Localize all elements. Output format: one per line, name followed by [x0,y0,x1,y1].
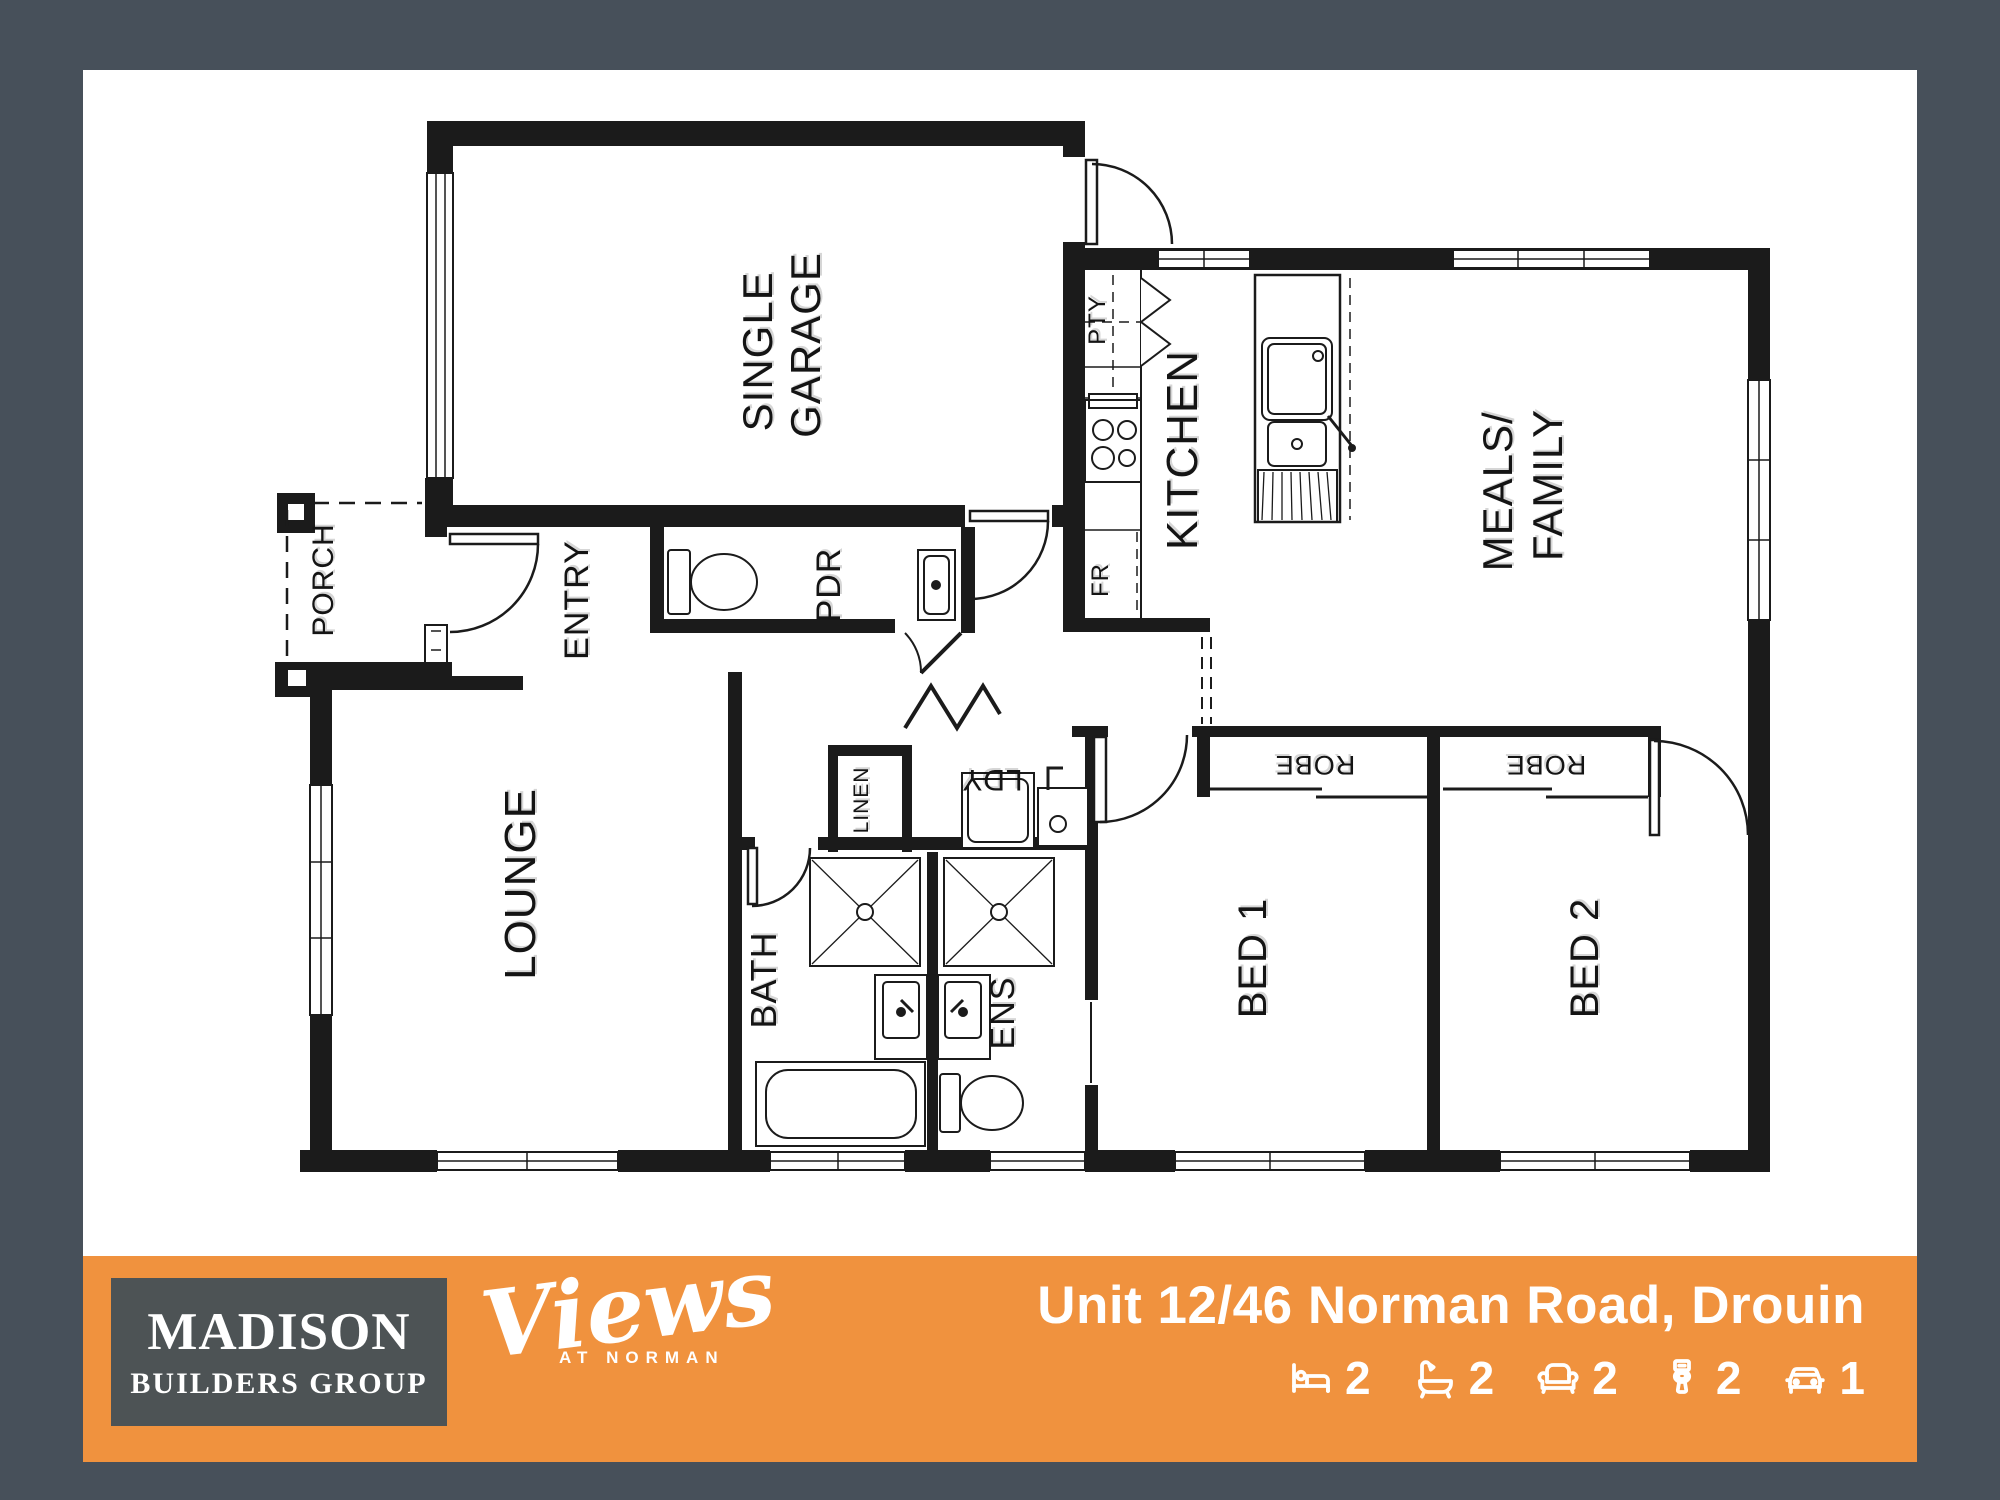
builder-tagline: BUILDERS GROUP [130,1369,427,1399]
stat-bedrooms-count: 2 [1345,1351,1371,1405]
label-garage: SINGLE GARAGE [734,252,829,438]
windows [310,173,1770,1170]
stat-living-count: 2 [1592,1351,1618,1405]
estate-logo: Views AT NORMAN [481,1262,811,1368]
label-pdr: PDR [810,548,848,623]
stat-bathrooms-count: 2 [1469,1351,1495,1405]
stat-cars: 1 [1781,1351,1865,1405]
bathtub [756,1062,925,1146]
bath-door-leaf [748,848,757,904]
garage-internal-door-arc [970,521,1048,599]
label-kitchen: KITCHEN [1158,350,1207,550]
estate-name: Views [476,1244,779,1371]
label-ldy: LDY [961,763,1022,796]
bed2-door-leaf [1650,740,1659,835]
ens-shower [944,858,1054,966]
toilet-icon [1658,1354,1706,1402]
pdr-door-leaf [921,633,961,673]
bath-shower [810,858,920,966]
bed2-door-arc [1654,741,1748,835]
bed-icon [1287,1354,1335,1402]
builder-name: MADISON [147,1306,410,1359]
label-fr: FR [1087,563,1114,597]
label-bath: BATH [743,931,784,1028]
window-mullions [310,173,1770,1170]
front-door-arc [450,544,538,632]
pdr-vanity [918,550,955,620]
label-pty: PTY [1084,295,1111,345]
pantry-door [1141,278,1170,322]
bed1-door-leaf [1094,737,1106,822]
stat-toilets-count: 2 [1716,1351,1742,1405]
stat-living: 2 [1534,1351,1618,1405]
address-block: Unit 12/46 Norman Road, Drouin 2 [1037,1276,1865,1405]
island-bench [1255,275,1355,522]
label-linen: LINEN [850,767,873,834]
label-meals: MEALS/ FAMILY [1474,399,1571,572]
stat-bedrooms: 2 [1287,1351,1371,1405]
bed1-door-arc [1100,735,1187,822]
stat-cars-count: 1 [1839,1351,1865,1405]
label-robe1: ROBE [1275,750,1356,780]
bath-icon [1411,1354,1459,1402]
builder-logo: MADISON BUILDERS GROUP [111,1278,447,1426]
label-lounge: LOUNGE [496,788,545,980]
sofa-icon [1534,1354,1582,1402]
garage-internal-door-leaf [970,511,1048,521]
car-icon [1781,1354,1829,1402]
front-door-leaf [450,534,538,544]
cooktop [1085,394,1141,482]
break-symbol [905,686,1000,728]
bath-door-arc [752,848,810,906]
label-entry: ENTRY [558,540,596,660]
ens-toilet [940,1074,1023,1132]
label-bed1: BED 1 [1231,898,1275,1019]
garage-side-door-arc [1092,164,1172,244]
property-stats: 2 2 2 [1037,1351,1865,1405]
label-bed2: BED 2 [1563,898,1607,1019]
label-robe2: ROBE [1506,750,1587,780]
bottom-banner: MADISON BUILDERS GROUP Views AT NORMAN U… [83,1256,1917,1462]
garage-side-door-leaf [1086,160,1097,244]
bath-vanity [875,975,927,1059]
label-ens: ENS [984,977,1022,1050]
label-porch: PORCH [307,523,340,636]
walls [275,121,1770,1172]
flyer-page: { "palette": { "frame": "#47505a", "canv… [0,0,2000,1500]
pdr-toilet [668,550,757,614]
stat-bathrooms: 2 [1411,1351,1495,1405]
pdr-door-arc [905,633,921,673]
stat-toilets: 2 [1658,1351,1742,1405]
property-address: Unit 12/46 Norman Road, Drouin [1037,1276,1865,1337]
ens-vanity [938,975,990,1059]
